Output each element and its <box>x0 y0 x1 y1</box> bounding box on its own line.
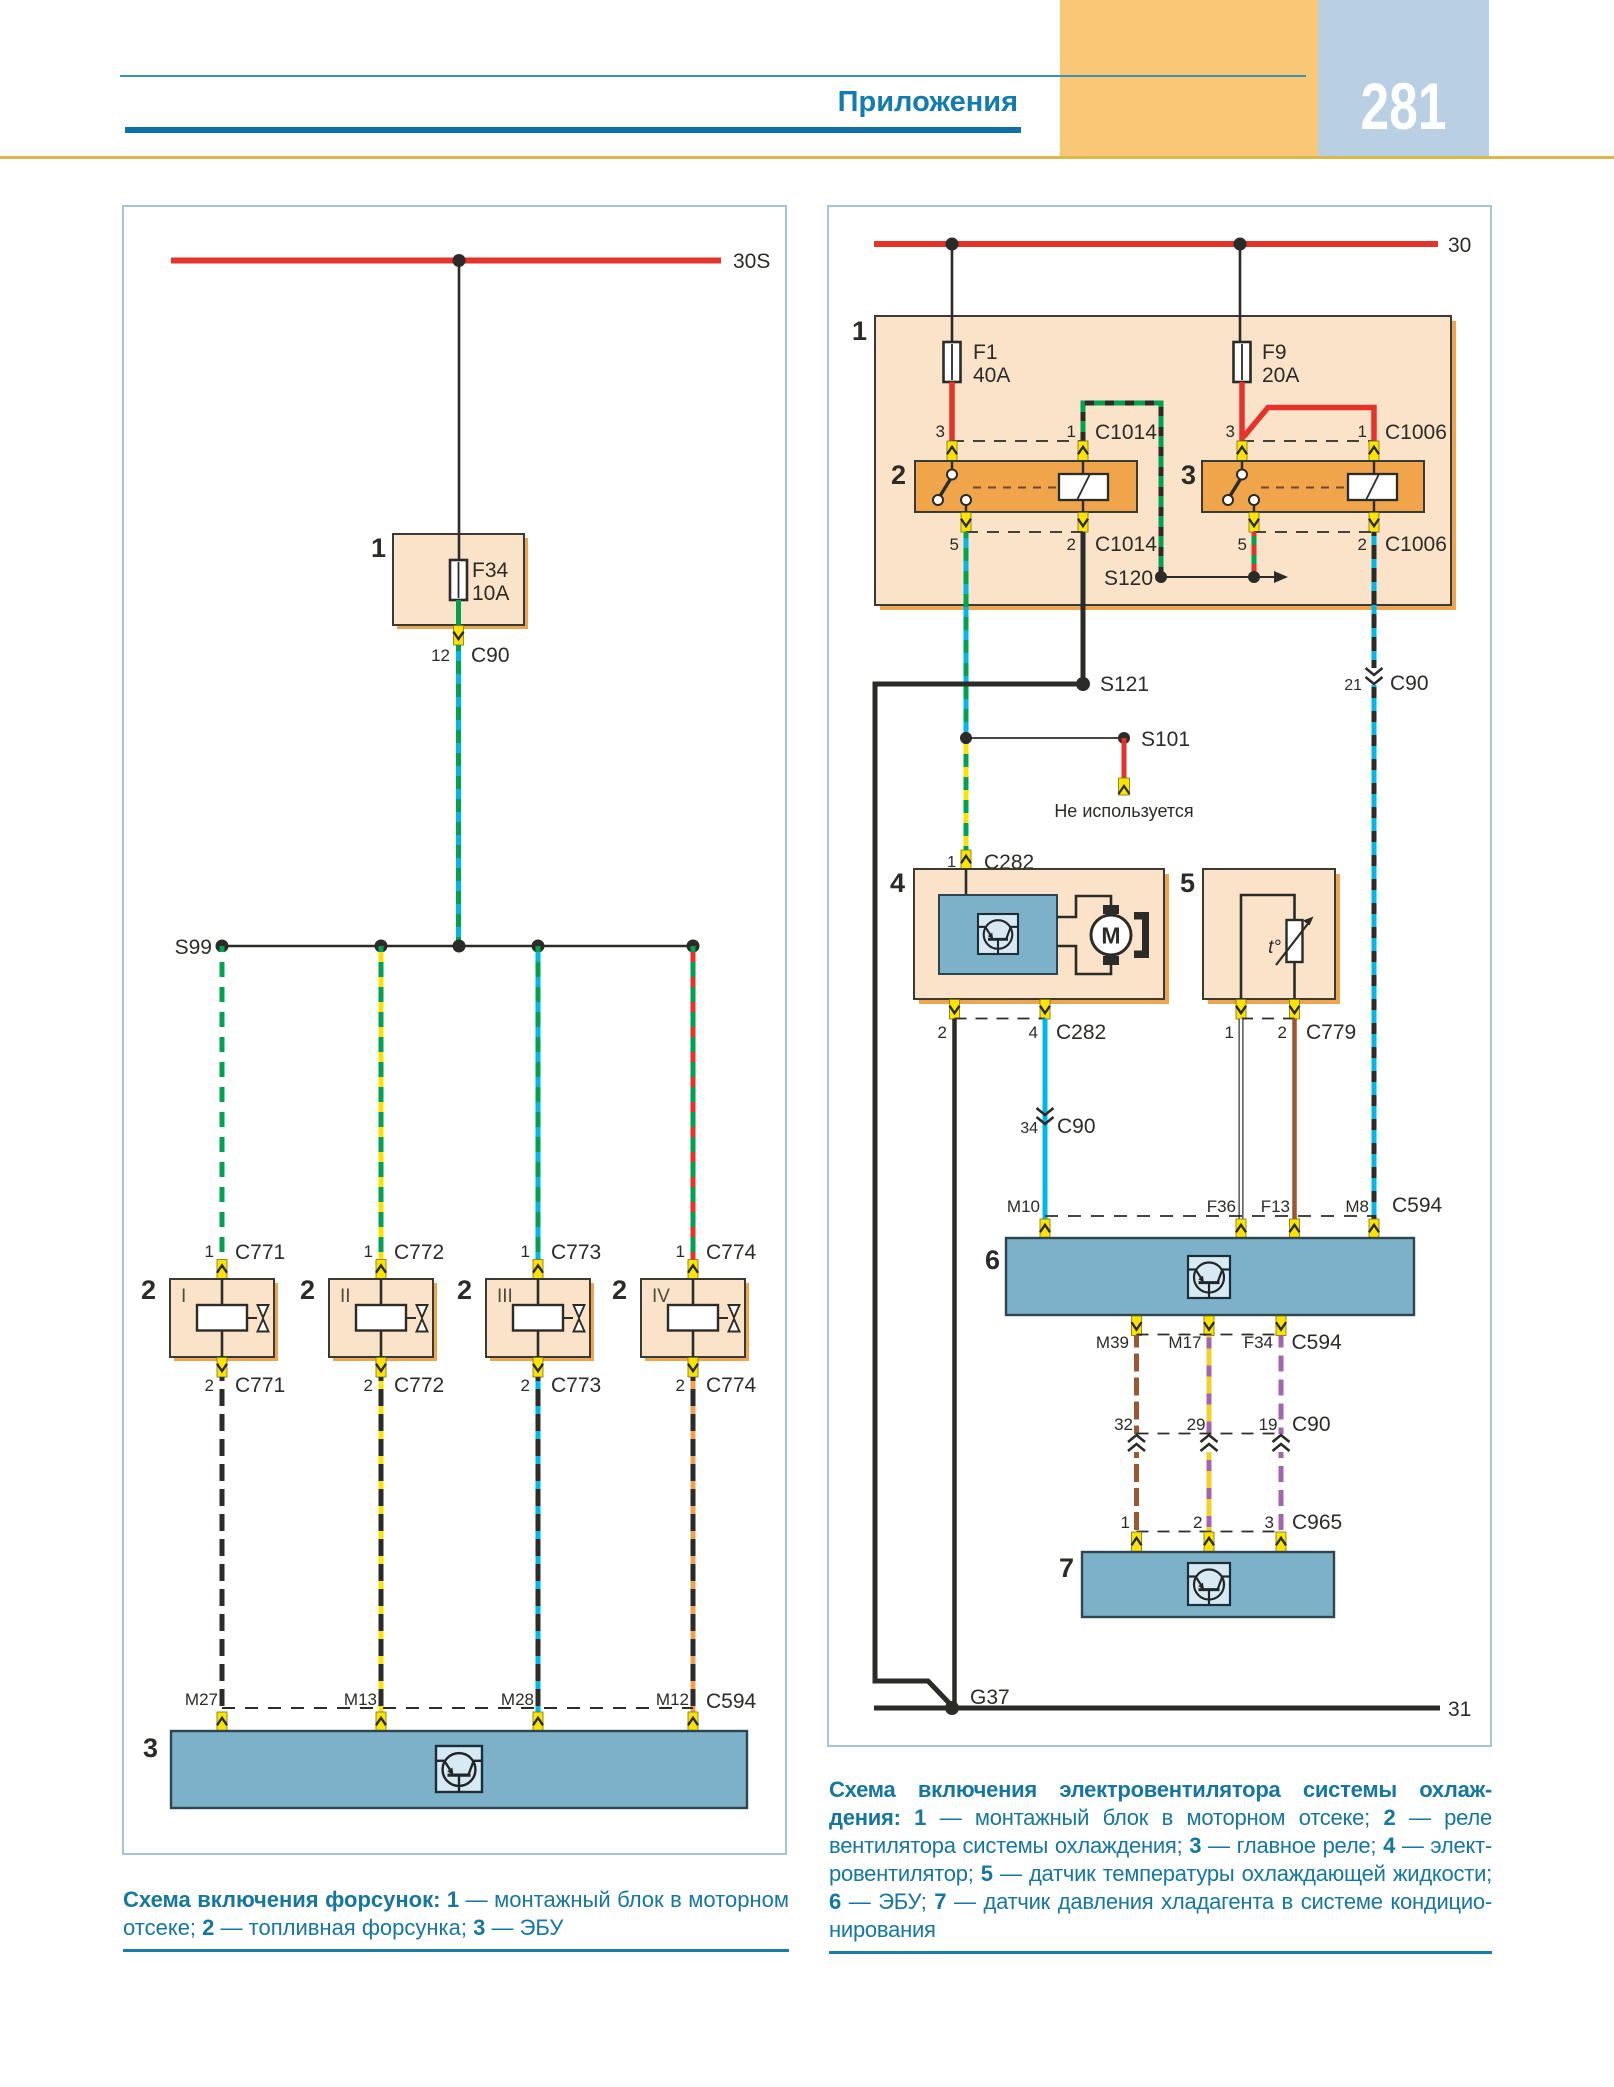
svg-text:5: 5 <box>1238 535 1247 554</box>
svg-text:F9: F9 <box>1262 341 1287 364</box>
svg-text:1: 1 <box>852 316 867 346</box>
svg-text:G37: G37 <box>970 1686 1010 1709</box>
svg-text:29: 29 <box>1187 1415 1206 1434</box>
svg-text:3: 3 <box>1265 1513 1274 1532</box>
svg-text:M10: M10 <box>1007 1197 1040 1216</box>
svg-text:1: 1 <box>1067 422 1076 441</box>
svg-text:M17: M17 <box>1168 1333 1201 1352</box>
svg-text:C779: C779 <box>1306 1021 1356 1044</box>
svg-text:32: 32 <box>1114 1415 1133 1434</box>
svg-text:19: 19 <box>1259 1415 1278 1434</box>
svg-text:C90: C90 <box>1057 1115 1096 1138</box>
svg-text:F34: F34 <box>1244 1333 1273 1352</box>
svg-text:F36: F36 <box>1207 1197 1236 1216</box>
svg-text:C965: C965 <box>1292 1511 1342 1534</box>
svg-text:M39: M39 <box>1096 1333 1129 1352</box>
svg-text:C282: C282 <box>1056 1021 1106 1044</box>
svg-text:3: 3 <box>1181 460 1196 490</box>
svg-text:t°: t° <box>1268 937 1281 958</box>
svg-text:40A: 40A <box>973 364 1010 387</box>
svg-text:S120: S120 <box>1104 567 1153 590</box>
svg-text:3: 3 <box>936 422 945 441</box>
svg-text:F1: F1 <box>973 341 998 364</box>
svg-text:C1006: C1006 <box>1385 421 1447 444</box>
svg-text:5: 5 <box>950 535 959 554</box>
svg-text:1: 1 <box>1358 422 1367 441</box>
svg-text:7: 7 <box>1059 1553 1074 1583</box>
svg-text:31: 31 <box>1448 1698 1471 1721</box>
svg-text:C90: C90 <box>1390 672 1429 695</box>
svg-text:M8: M8 <box>1345 1197 1369 1216</box>
svg-text:1: 1 <box>1121 1513 1130 1532</box>
svg-text:C1014: C1014 <box>1095 421 1157 444</box>
svg-text:21: 21 <box>1344 677 1362 694</box>
svg-text:C90: C90 <box>1292 1413 1331 1436</box>
svg-text:3: 3 <box>1226 422 1235 441</box>
svg-text:S121: S121 <box>1100 673 1149 696</box>
svg-text:C594: C594 <box>1292 1331 1343 1354</box>
svg-text:20A: 20A <box>1262 364 1299 387</box>
svg-text:2: 2 <box>1067 535 1076 554</box>
svg-text:C1006: C1006 <box>1385 533 1447 556</box>
svg-text:S101: S101 <box>1141 728 1190 751</box>
svg-text:5: 5 <box>1180 868 1195 898</box>
svg-text:30: 30 <box>1448 234 1471 257</box>
svg-text:4: 4 <box>890 868 905 898</box>
svg-text:34: 34 <box>1020 1120 1038 1137</box>
svg-text:4: 4 <box>1029 1023 1038 1042</box>
svg-text:2: 2 <box>1358 535 1367 554</box>
svg-text:2: 2 <box>891 460 906 490</box>
svg-text:C1014: C1014 <box>1095 533 1157 556</box>
svg-text:F13: F13 <box>1261 1197 1290 1216</box>
svg-text:2: 2 <box>1278 1023 1287 1042</box>
svg-text:6: 6 <box>985 1245 1000 1275</box>
svg-text:2: 2 <box>1193 1513 1202 1532</box>
svg-text:2: 2 <box>938 1023 947 1042</box>
svg-text:Не используется: Не используется <box>1054 801 1193 821</box>
svg-text:1: 1 <box>1225 1023 1234 1042</box>
svg-text:M: M <box>1101 923 1120 949</box>
svg-text:C594: C594 <box>1392 1194 1443 1217</box>
